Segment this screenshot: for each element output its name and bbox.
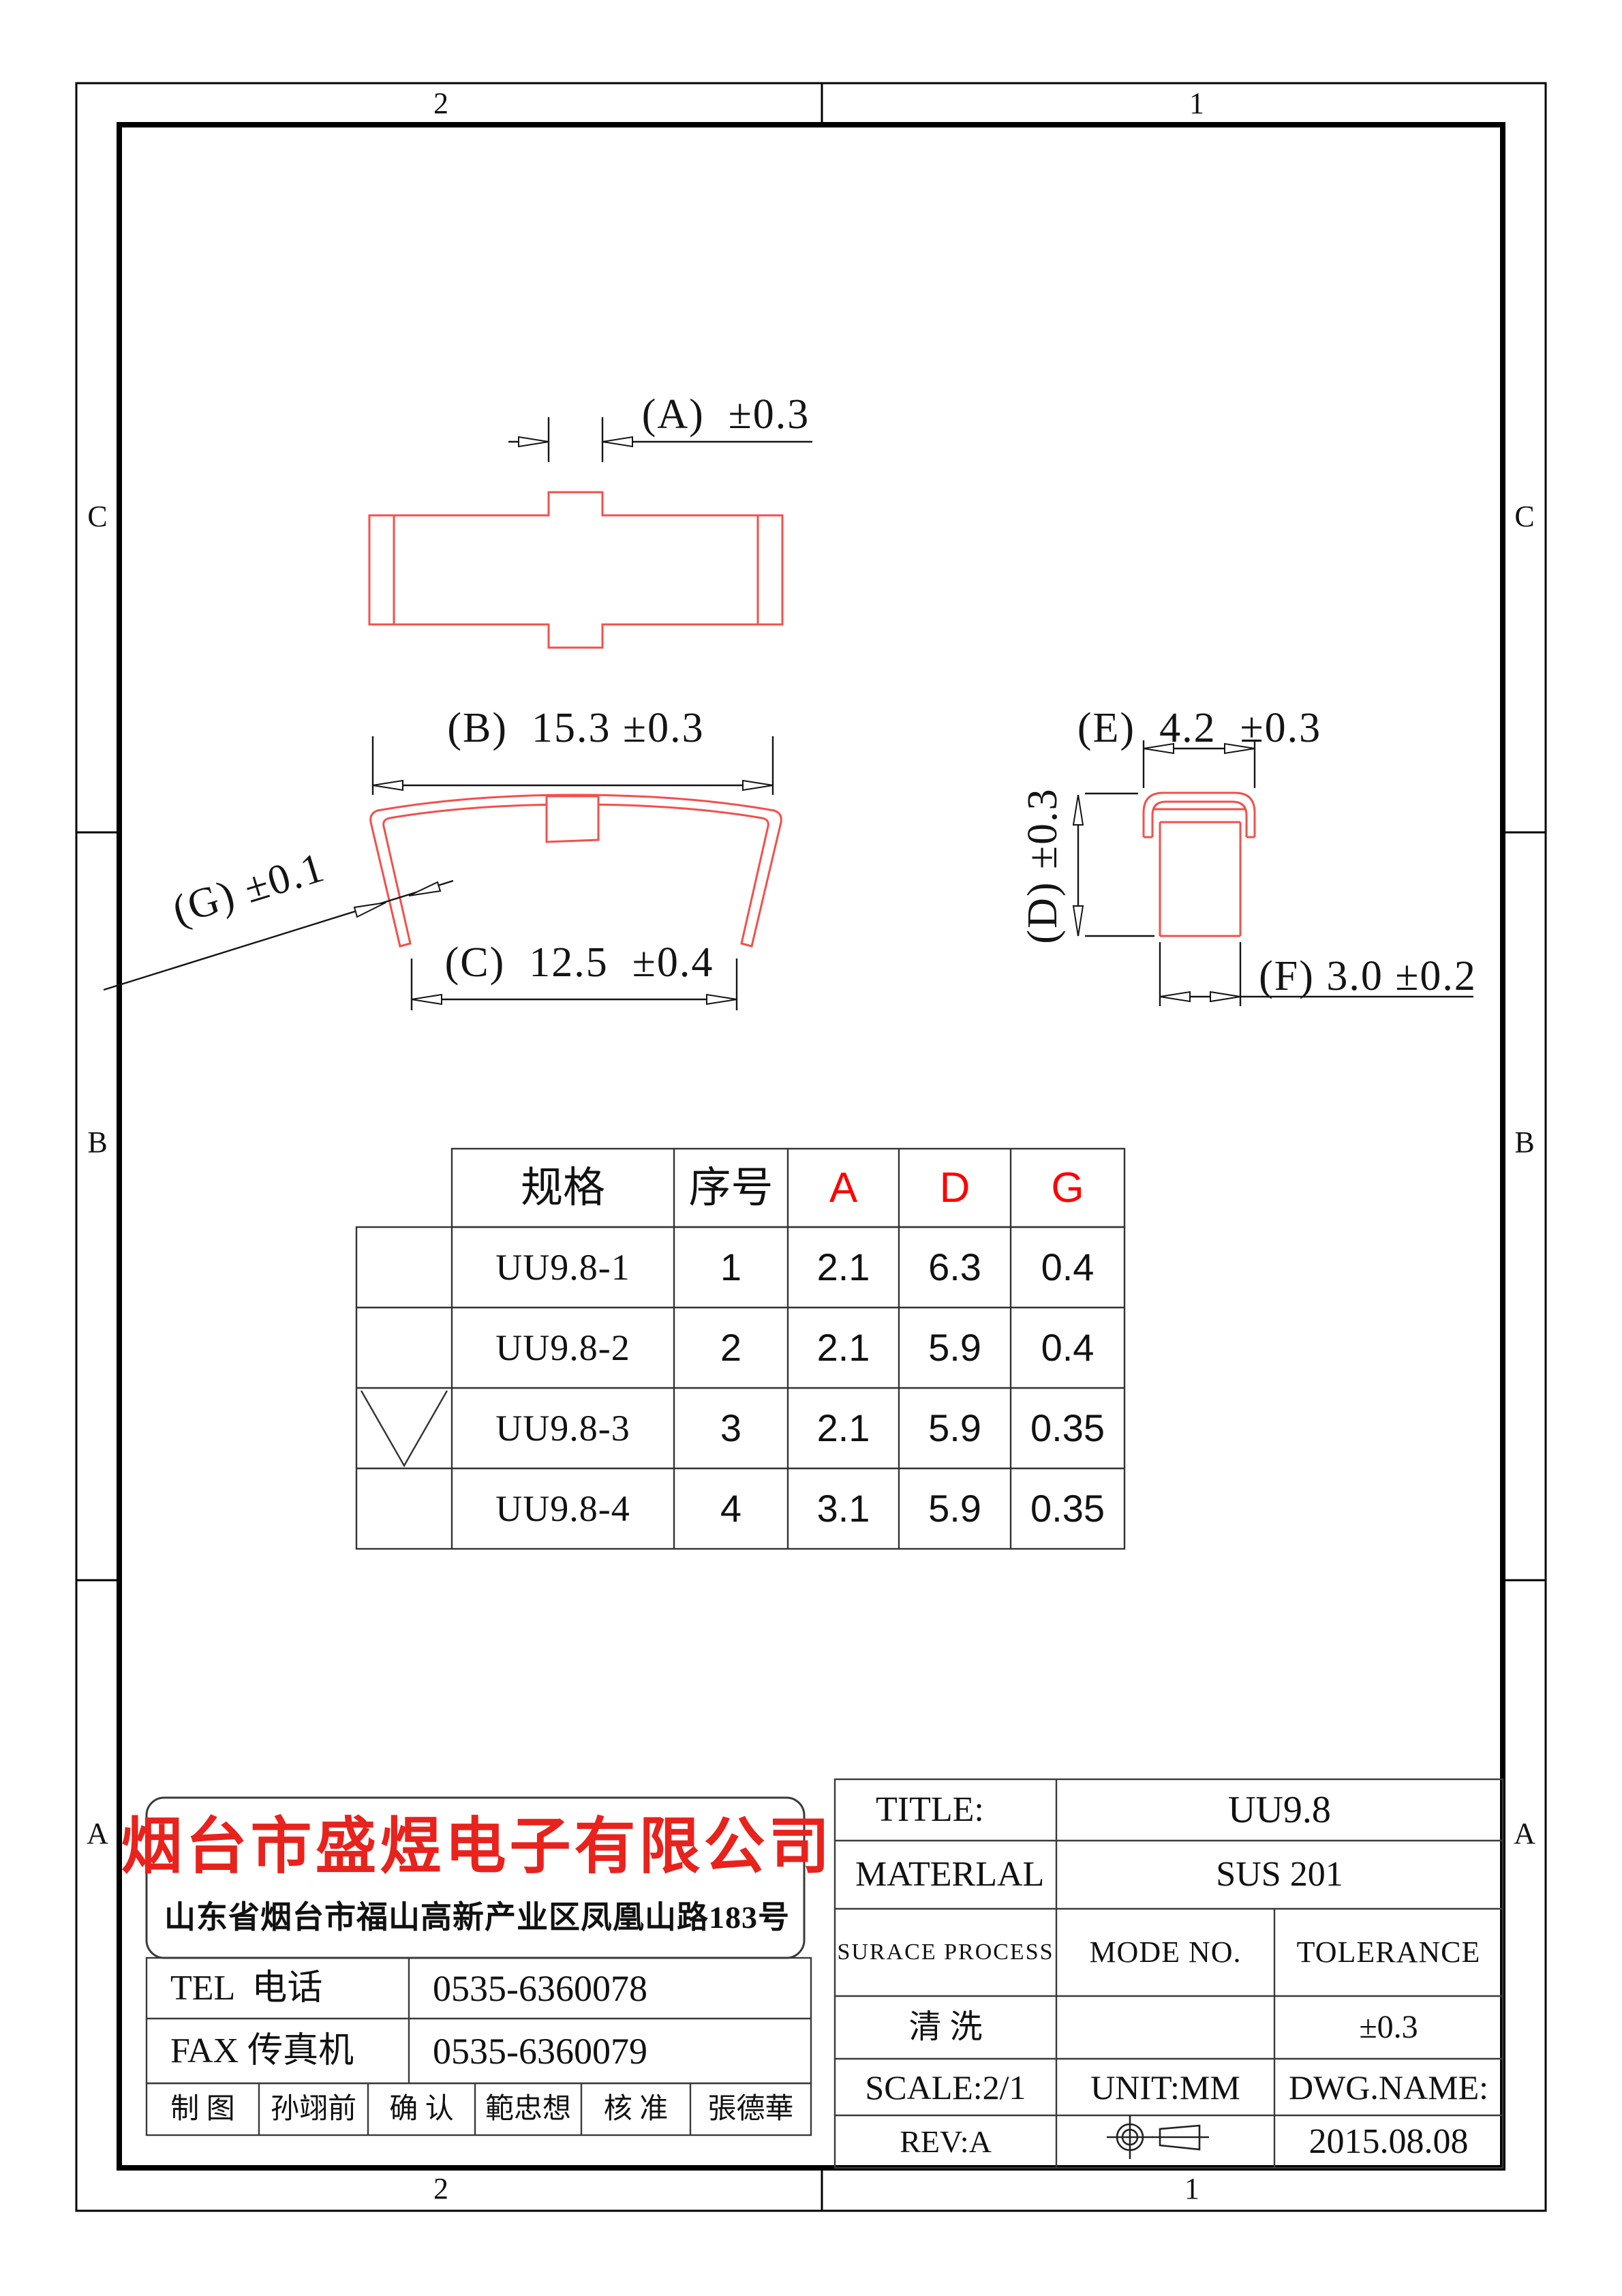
- part-top-view: [369, 492, 782, 648]
- dim-c-label: (C) 12.5 ±0.4: [436, 941, 722, 984]
- spec-table-header-a: A: [788, 1149, 899, 1227]
- title-label: TITLE:: [876, 1779, 1053, 1841]
- check-mark-icon: [361, 1391, 447, 1466]
- role-approver-label: 核 准: [581, 2083, 690, 2135]
- table-row: UU9.8-2: [452, 1308, 674, 1388]
- role-checker-name: 範忠想: [475, 2083, 581, 2135]
- zone-label-top-1: 1: [1176, 83, 1217, 124]
- dim-a-label: (A) ±0.3: [641, 394, 811, 435]
- zone-label-left-b: B: [77, 1122, 118, 1163]
- part-side-view: [1144, 793, 1255, 936]
- mode-no-label: MODE NO.: [1056, 1909, 1274, 1996]
- tel-value: 0535-6360078: [433, 1958, 801, 2019]
- surface-process-label: SURACE PROCESS: [835, 1909, 1056, 1996]
- material-value: SUS 201: [1056, 1841, 1503, 1909]
- role-checker-label: 确 认: [368, 2083, 475, 2135]
- dwg-name-label: DWG.NAME:: [1274, 2059, 1503, 2115]
- dim-f-label: (F) 3.0 ±0.2: [1262, 956, 1473, 997]
- scale-value: SCALE:2/1: [835, 2059, 1056, 2115]
- table-row: UU9.8-3: [452, 1388, 674, 1468]
- zone-label-right-a: A: [1504, 1813, 1545, 1854]
- dim-e-label: (E) 4.2 ±0.3: [1080, 706, 1319, 750]
- company-name: 烟台市盛煜电子有限公司: [157, 1813, 797, 1882]
- tolerance-label: TOLERANCE: [1274, 1909, 1503, 1996]
- zone-label-left-a: A: [77, 1813, 118, 1854]
- dim-b-label: (B) 15.3 ±0.3: [433, 706, 719, 750]
- zone-label-left-c: C: [77, 496, 118, 537]
- spec-table-header-spec: 规格: [452, 1149, 674, 1227]
- dim-d-label: (D) ±0.3: [1021, 764, 1065, 968]
- unit-value: UNIT:MM: [1056, 2059, 1274, 2115]
- projection-symbol-icon: [1107, 2115, 1209, 2159]
- zone-label-top-2: 2: [420, 83, 461, 124]
- rev-value: REV:A: [835, 2115, 1056, 2168]
- title-value: UU9.8: [1056, 1779, 1503, 1841]
- zone-label-bottom-2: 2: [420, 2169, 461, 2209]
- drawing-sheet: 2 1 2 1 C B A C B A (A) ±0.3 (B) 15.3 ±0…: [0, 0, 1622, 2296]
- zone-label-right-c: C: [1504, 496, 1545, 537]
- material-label: MATERLAL: [855, 1841, 1053, 1909]
- zone-label-right-b: B: [1504, 1122, 1545, 1163]
- tolerance-value: ±0.3: [1274, 1996, 1503, 2059]
- surface-process-value: 清 洗: [835, 1996, 1056, 2059]
- table-row: UU9.8-4: [452, 1468, 674, 1549]
- date-value: 2015.08.08: [1274, 2115, 1503, 2168]
- fax-value: 0535-6360079: [433, 2019, 801, 2083]
- part-front-view: [371, 795, 782, 946]
- role-drafter-name: 孙翊前: [259, 2083, 368, 2135]
- spec-table-header-no: 序号: [674, 1149, 788, 1227]
- tel-label: TEL 电话: [170, 1958, 395, 2019]
- company-address: 山东省烟台市福山高新产业区凤凰山路183号: [157, 1897, 797, 1939]
- spec-table-header-g: G: [1011, 1149, 1124, 1227]
- fax-label: FAX 传真机: [170, 2019, 395, 2083]
- table-row: UU9.8-1: [452, 1227, 674, 1308]
- spec-table-header-d: D: [899, 1149, 1011, 1227]
- role-drafter-label: 制 图: [147, 2083, 259, 2135]
- role-approver-name: 張德華: [690, 2083, 811, 2135]
- zone-label-bottom-1: 1: [1172, 2169, 1212, 2209]
